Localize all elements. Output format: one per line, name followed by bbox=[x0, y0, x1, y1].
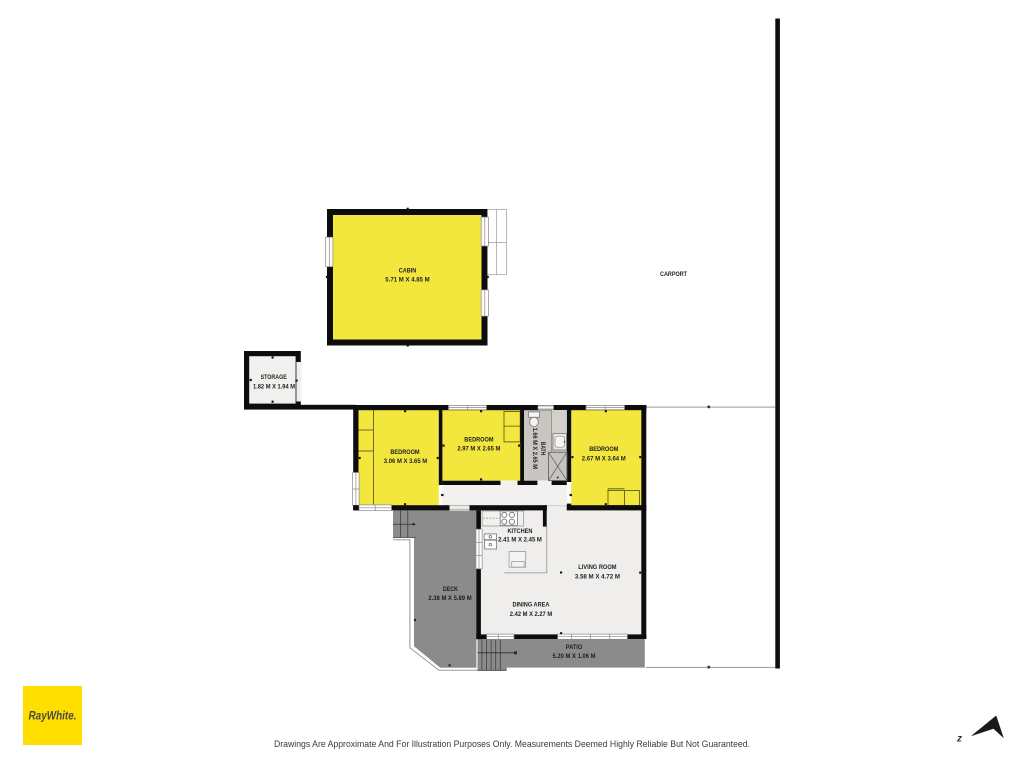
svg-text:z: z bbox=[956, 734, 962, 745]
svg-text:2.38 M X 5.89 M: 2.38 M X 5.89 M bbox=[428, 595, 471, 602]
svg-text:KITCHEN: KITCHEN bbox=[508, 528, 533, 535]
svg-text:STORAGE: STORAGE bbox=[261, 374, 287, 381]
svg-text:5.71 M X 4.85 M: 5.71 M X 4.85 M bbox=[385, 276, 429, 283]
svg-text:5.20 M X 1.06 M: 5.20 M X 1.06 M bbox=[553, 653, 596, 660]
svg-text:BEDROOM: BEDROOM bbox=[464, 436, 493, 443]
svg-text:2.42 M X 2.27 M: 2.42 M X 2.27 M bbox=[510, 611, 552, 618]
svg-text:BEDROOM: BEDROOM bbox=[589, 446, 618, 453]
svg-text:CABIN: CABIN bbox=[399, 268, 417, 275]
svg-text:Drawings Are Approximate And F: Drawings Are Approximate And For Illustr… bbox=[274, 738, 750, 749]
svg-text:2.67 M X 3.64 M: 2.67 M X 3.64 M bbox=[582, 455, 626, 462]
svg-text:DINING AREA: DINING AREA bbox=[513, 602, 550, 609]
svg-text:2.41 M X 2.45 M: 2.41 M X 2.45 M bbox=[498, 536, 542, 543]
svg-text:BATH: BATH bbox=[539, 442, 546, 456]
svg-text:2.97 M X 2.65 M: 2.97 M X 2.65 M bbox=[457, 445, 500, 452]
svg-text:3.06 M X 3.65 M: 3.06 M X 3.65 M bbox=[384, 458, 427, 465]
svg-text:CARPORT: CARPORT bbox=[660, 271, 687, 278]
svg-text:1.82 M X 1.94 M: 1.82 M X 1.94 M bbox=[253, 383, 295, 390]
svg-text:RayWhite.: RayWhite. bbox=[29, 709, 77, 723]
svg-text:1.66 M X 2.65 M: 1.66 M X 2.65 M bbox=[531, 428, 538, 469]
svg-text:DECK: DECK bbox=[443, 586, 458, 593]
svg-text:PATIO: PATIO bbox=[566, 644, 583, 651]
svg-text:BEDROOM: BEDROOM bbox=[390, 449, 419, 456]
svg-text:LIVING ROOM: LIVING ROOM bbox=[578, 564, 616, 571]
svg-text:3.58 M X 4.72 M: 3.58 M X 4.72 M bbox=[575, 573, 620, 580]
